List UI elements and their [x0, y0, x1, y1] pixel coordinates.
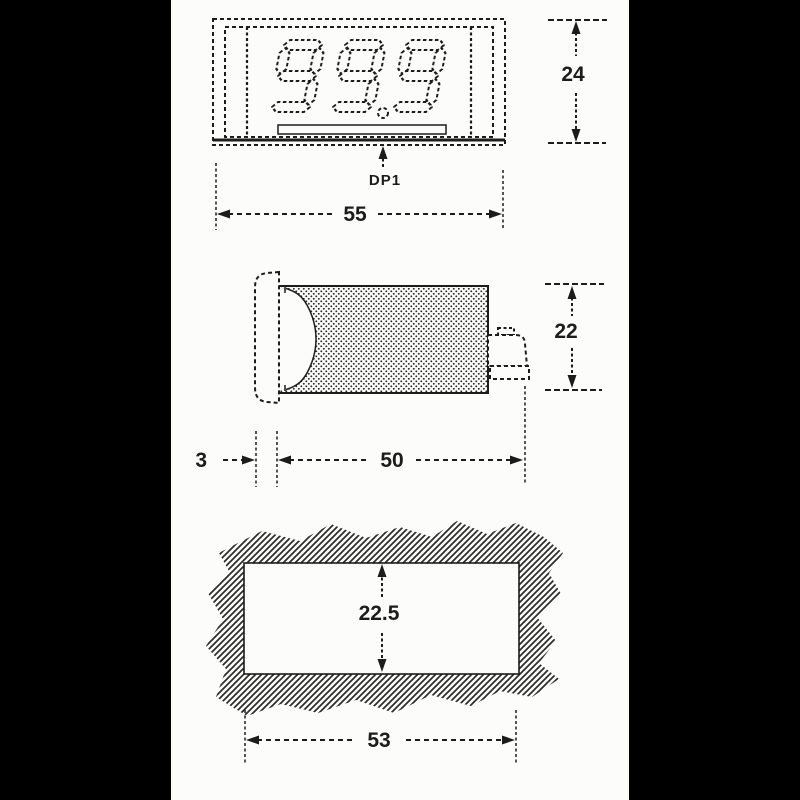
- cutout-height-dim-label: 22.5: [359, 602, 400, 625]
- dp1-label: DP1: [369, 172, 401, 189]
- depth-dim-label: 50: [380, 449, 403, 472]
- segment-G: [338, 71, 378, 81]
- connector-body: [488, 335, 527, 366]
- segment-G: [399, 71, 439, 81]
- segment-A: [405, 40, 445, 50]
- connector-base: [490, 366, 529, 379]
- width-dim-label: 55: [343, 203, 367, 226]
- segment-D: [271, 102, 311, 112]
- connector-tab: [498, 328, 514, 335]
- bezel-dim-label: 3: [195, 449, 207, 472]
- right-black-border: [629, 0, 800, 800]
- cutout-width-dim-label: 53: [367, 729, 390, 752]
- segment-A: [283, 40, 323, 50]
- decimal-point: [378, 108, 388, 118]
- segment-A: [344, 40, 384, 50]
- segment-G: [277, 71, 317, 81]
- height-dim-label: 24: [561, 63, 585, 86]
- segment-D: [393, 102, 433, 112]
- technical-drawing-page: DP1 55 24: [0, 0, 800, 800]
- panel-meter-dimension-drawing: DP1 55 24: [0, 0, 800, 800]
- bezel-profile: [255, 272, 279, 403]
- left-black-border: [0, 0, 171, 800]
- segment-D: [332, 102, 372, 112]
- display-bottom-bar: [278, 125, 446, 134]
- side-height-dim-label: 22: [554, 320, 577, 343]
